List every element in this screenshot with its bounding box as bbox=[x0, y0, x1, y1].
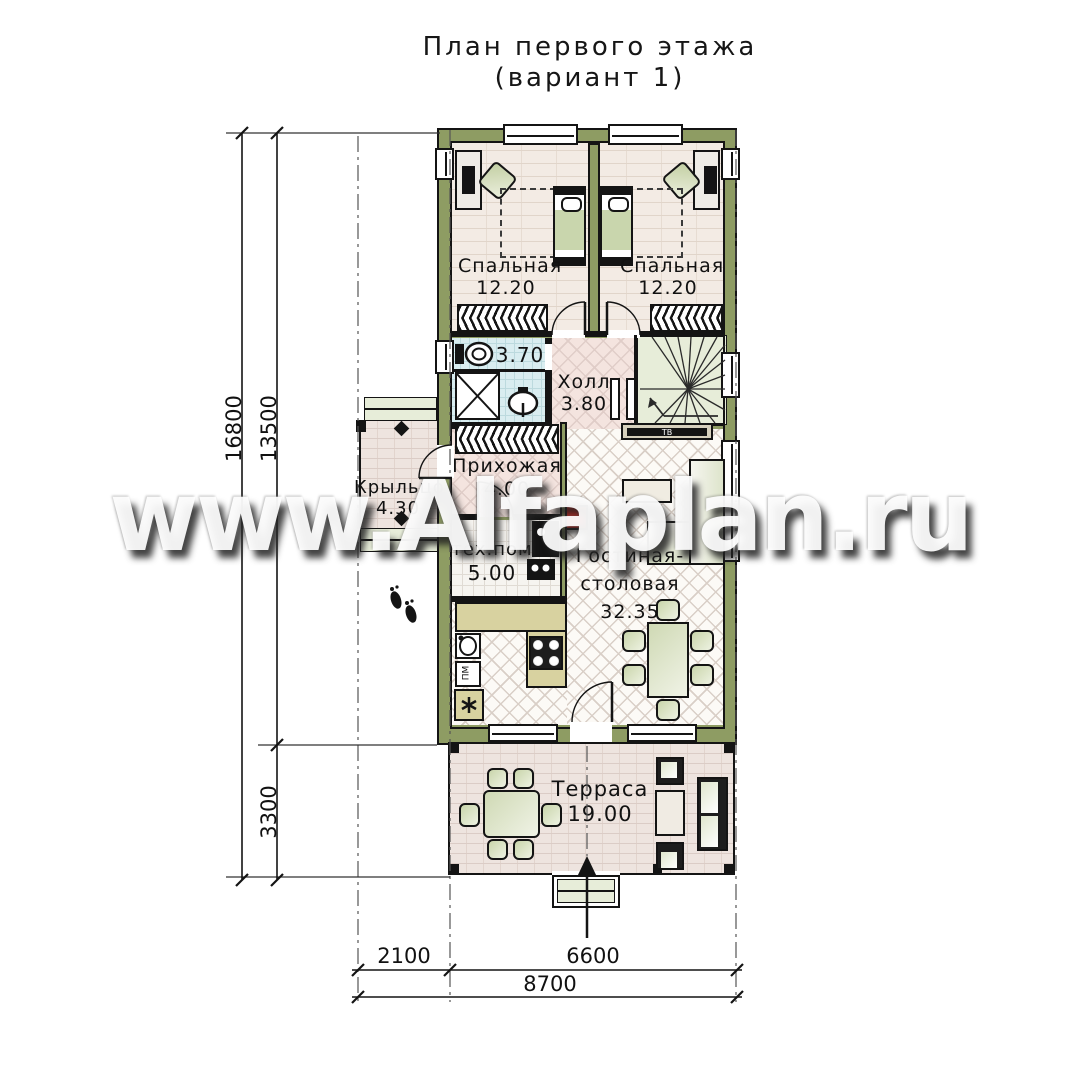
plan-title-line2: (вариант 1) bbox=[400, 63, 780, 94]
plan-title-line1: План первого этажа bbox=[400, 32, 780, 63]
label-terrace-name: Терраса bbox=[540, 778, 660, 801]
terrace-chair bbox=[487, 768, 508, 789]
terrace-post bbox=[450, 864, 459, 873]
pillow bbox=[608, 197, 629, 212]
terrace-post bbox=[724, 864, 733, 873]
dim-bottom-porch: 2100 bbox=[364, 944, 444, 968]
terrace-armchair bbox=[656, 842, 684, 870]
window-bathroom-left bbox=[435, 340, 454, 374]
tv-label: ТВ bbox=[655, 428, 679, 437]
terrace-chair bbox=[513, 839, 534, 860]
cushion bbox=[701, 816, 718, 847]
floor-plan-sheet: План первого этажа (вариант 1) bbox=[0, 0, 1080, 1080]
terrace-table bbox=[483, 790, 540, 838]
dim-bottom-total: 8700 bbox=[460, 972, 640, 996]
shower-box bbox=[455, 372, 500, 420]
hall-door-jamb bbox=[626, 378, 636, 420]
dining-table bbox=[647, 622, 689, 698]
window-bedroom2-right bbox=[721, 148, 740, 180]
wardrobe-bedroom1 bbox=[457, 304, 548, 332]
dim-bottom-house: 6600 bbox=[500, 944, 686, 968]
dining-chair bbox=[690, 630, 714, 652]
terrace-post bbox=[724, 744, 733, 753]
watermark: www.Alfaplan.ru bbox=[50, 460, 1030, 573]
terrace-sofa bbox=[697, 777, 728, 851]
desk-monitor bbox=[704, 166, 717, 194]
plan-title: План первого этажа (вариант 1) bbox=[400, 32, 780, 94]
kitchen-sink-unit bbox=[455, 633, 481, 659]
bed-bedroom2 bbox=[600, 186, 633, 266]
window-bedroom1-top bbox=[503, 124, 578, 145]
wardrobe-bedroom2 bbox=[650, 304, 723, 332]
dining-chair bbox=[656, 699, 680, 721]
terrace-step bbox=[557, 891, 615, 903]
fridge-unit bbox=[454, 689, 484, 721]
porch-step bbox=[364, 409, 437, 421]
window-bedroom1-left bbox=[435, 148, 454, 180]
dim-left-terrace: 3300 bbox=[257, 780, 281, 844]
dining-chair bbox=[622, 630, 646, 652]
door-gap bbox=[545, 344, 552, 370]
dim-left-total: 16800 bbox=[222, 398, 246, 462]
label-hall-name: Холл bbox=[556, 372, 612, 393]
bed-bedroom1 bbox=[553, 186, 586, 266]
bedroom2-zone bbox=[627, 188, 683, 258]
terrace-chair bbox=[487, 839, 508, 860]
door-terrace-gap bbox=[570, 722, 612, 743]
label-bedroom2-area: 12.20 bbox=[620, 278, 716, 299]
kitchen-counter-top bbox=[455, 602, 567, 632]
window-bedroom2-top bbox=[608, 124, 683, 145]
window-living-bottom-2 bbox=[627, 724, 697, 742]
terrace-post bbox=[450, 744, 459, 753]
terrace-chair bbox=[459, 803, 480, 827]
wall-seg bbox=[585, 331, 607, 337]
desk-monitor bbox=[462, 166, 475, 194]
label-living-area: 32.35 bbox=[565, 602, 695, 623]
dim-left-house: 13500 bbox=[257, 398, 281, 462]
wall-bedroom-partition bbox=[588, 143, 600, 334]
window-stairs-right bbox=[721, 352, 740, 398]
label-bathroom-area: 3.70 bbox=[494, 344, 546, 366]
door-gap bbox=[552, 330, 585, 338]
dining-chair bbox=[690, 664, 714, 686]
label-terrace-area: 19.00 bbox=[540, 803, 660, 826]
wardrobe-entry bbox=[455, 424, 559, 454]
dining-chair bbox=[622, 664, 646, 686]
terrace-chair bbox=[513, 768, 534, 789]
terrace-step bbox=[557, 879, 615, 891]
bedroom1-zone bbox=[500, 188, 556, 258]
label-bedroom1-name: Спальная bbox=[458, 256, 554, 277]
dishwasher-label: ПМ bbox=[461, 666, 471, 681]
footprints-icon bbox=[388, 585, 418, 624]
label-bedroom2-name: Спальная bbox=[620, 256, 716, 277]
porch-step bbox=[364, 397, 437, 409]
label-bedroom1-area: 12.20 bbox=[458, 278, 554, 299]
label-hall-area: 3.80 bbox=[556, 394, 612, 415]
cushion bbox=[701, 782, 718, 813]
window-living-bottom-1 bbox=[488, 724, 558, 742]
label-living-name2: столовая bbox=[565, 574, 695, 595]
kitchen-stove bbox=[529, 636, 563, 670]
cushion bbox=[661, 852, 677, 868]
pillow bbox=[561, 197, 582, 212]
terrace-armchair bbox=[656, 757, 684, 785]
porch-post bbox=[356, 420, 366, 432]
cushion bbox=[661, 762, 677, 778]
